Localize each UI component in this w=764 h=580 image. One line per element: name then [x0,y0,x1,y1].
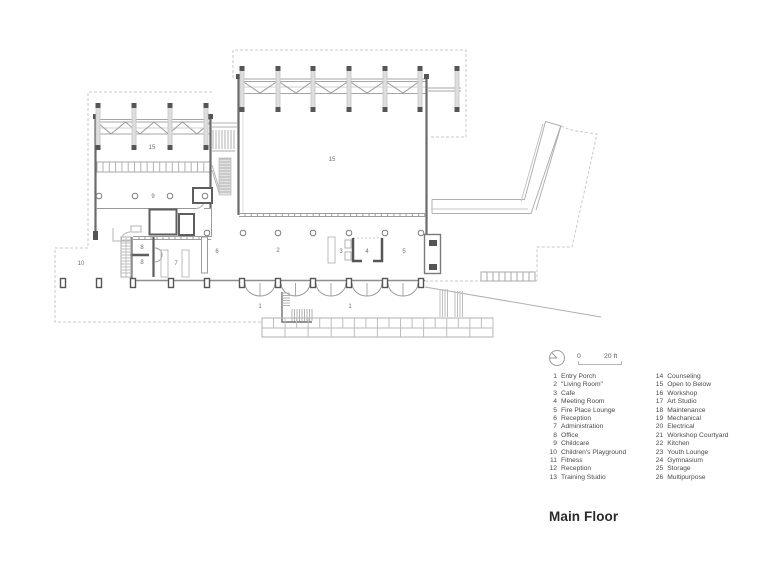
room-number-label: 7 [174,261,178,267]
room-number-label: 1 [258,304,262,310]
legend-item: 19Mechanical [650,415,728,423]
scale-twenty: 20 ft [604,353,617,360]
legend-item: 23Youth Lounge [650,449,728,457]
legend-item-number: 1 [544,373,557,381]
room-number-label: 3 [339,249,343,255]
legend-item-number: 22 [650,440,663,448]
legend-item-label: Maintenance [667,407,705,415]
legend-item-label: Childcare [561,440,589,448]
legend-item-label: Art Studio [667,398,696,406]
legend-item-label: Open to Below [667,381,711,389]
legend-item-number: 23 [650,449,663,457]
legend-item-label: Electrical [667,423,694,431]
legend-item: 9Childcare [544,440,626,448]
legend-item-number: 6 [544,415,557,423]
legend-item: 13Training Studio [544,474,626,482]
room-number-label: 8 [140,245,144,251]
legend-item: 4Meeting Room [544,398,626,406]
scale-bar: 0 20 ft [546,348,656,370]
room-number-label: 1 [348,304,352,310]
legend-item-number: 5 [544,407,557,415]
stair-shaft [193,123,237,237]
legend-item-label: Office [561,432,578,440]
legend-item-label: Storage [667,465,690,473]
legend-item: 20Electrical [650,423,728,431]
legend-item-label: "Living Room" [561,381,603,389]
legend-item-label: Training Studio [561,474,606,482]
legend-item-number: 7 [544,423,557,431]
room-number-label: 4 [365,249,369,255]
page-title: Main Floor [549,509,618,524]
room-number-label: 2 [276,248,280,254]
legend-item-number: 9 [544,440,557,448]
legend-column-1: 1Entry Porch2"Living Room"3Cafe4Meeting … [544,373,626,482]
legend-item: 8Office [544,432,626,440]
legend-item-number: 17 [650,398,663,406]
legend-item-label: Gymnasium [667,457,703,465]
legend-item-number: 3 [544,390,557,398]
legend-item: 5Fire Place Lounge [544,407,626,415]
floor-plan: 15915887623451011 [0,0,764,580]
legend-item-number: 19 [650,415,663,423]
boardwalk-deck [262,318,493,337]
room-number-label: 8 [140,260,144,266]
legend-item-number: 10 [544,449,557,457]
legend-item-number: 20 [650,423,663,431]
angled-wall [432,122,561,214]
legend-column-2: 14Counseling15Open to Below16Workshop17A… [650,373,728,482]
legend-item-label: Mechanical [667,415,701,423]
legend-item-label: Multipurpose [667,474,705,482]
legend-item-label: Children's Playground [561,449,626,457]
legend-item-label: Fire Place Lounge [561,407,615,415]
legend-item-number: 8 [544,432,557,440]
legend-item-number: 4 [544,398,557,406]
room-number-label: 15 [329,157,336,163]
legend-item: 10Children's Playground [544,449,626,457]
legend-item: 7Administration [544,423,626,431]
legend-item-label: Administration [561,423,603,431]
legend-item: 1Entry Porch [544,373,626,381]
room-number-label: 15 [149,145,156,151]
column-grid-circles [96,193,424,236]
room-number-label: 9 [151,194,155,200]
room-number-label: 6 [215,249,219,255]
legend-item-label: Fitness [561,457,583,465]
legend-item-number: 18 [650,407,663,415]
exterior-stair [121,237,131,277]
legend-item-label: Workshop Courtyard [667,432,728,440]
legend-item: 26Multipurpose [650,474,728,482]
legend-item: 17Art Studio [650,398,728,406]
legend-item-number: 25 [650,465,663,473]
legend-item-label: Counseling [667,373,700,381]
legend-item: 3Cafe [544,390,626,398]
legend-item-number: 24 [650,457,663,465]
legend-item-number: 11 [544,457,557,465]
legend-item: 25Storage [650,465,728,473]
legend-item-label: Entry Porch [561,373,596,381]
room-legend: 1Entry Porch2"Living Room"3Cafe4Meeting … [544,373,728,482]
room-number-label: 10 [78,261,85,267]
legend-item-label: Reception [561,415,591,423]
clerestory-band [97,162,211,172]
trellis-strip [481,272,535,281]
legend-item-number: 21 [650,432,663,440]
legend-item-number: 13 [544,474,557,482]
drawing-sheet: 15915887623451011 0 20 ft 1Entry Porch2"… [0,0,764,580]
lower-wing [113,210,441,282]
legend-item: 21Workshop Courtyard [650,432,728,440]
scale-zero: 0 [577,353,581,360]
legend-item: 11Fitness [544,457,626,465]
legend-item-number: 16 [650,390,663,398]
north-arrow-icon [548,349,566,367]
ramp [425,287,601,317]
legend-item-number: 15 [650,381,663,389]
legend-item-number: 2 [544,381,557,389]
legend-item-number: 14 [650,373,663,381]
legend-item-label: Cafe [561,390,575,398]
legend-item: 24Gymnasium [650,457,728,465]
legend-item: 12Reception [544,465,626,473]
legend-item-label: Reception [561,465,591,473]
legend-item-number: 26 [650,474,663,482]
legend-item-number: 12 [544,465,557,473]
legend-item-label: Meeting Room [561,398,605,406]
scale-bracket [578,361,622,365]
legend-item: 15Open to Below [650,381,728,389]
legend-item: 16Workshop [650,390,728,398]
legend-item: 2"Living Room" [544,381,626,389]
porch-door-arcs [245,283,418,296]
legend-item: 6Reception [544,415,626,423]
legend-item-label: Workshop [667,390,697,398]
legend-item: 22Kitchen [650,440,728,448]
legend-item: 14Counseling [650,373,728,381]
legend-item-label: Kitchen [667,440,689,448]
legend-item: 18Maintenance [650,407,728,415]
legend-item-label: Youth Lounge [667,449,708,457]
room-number-label: 5 [402,249,406,255]
